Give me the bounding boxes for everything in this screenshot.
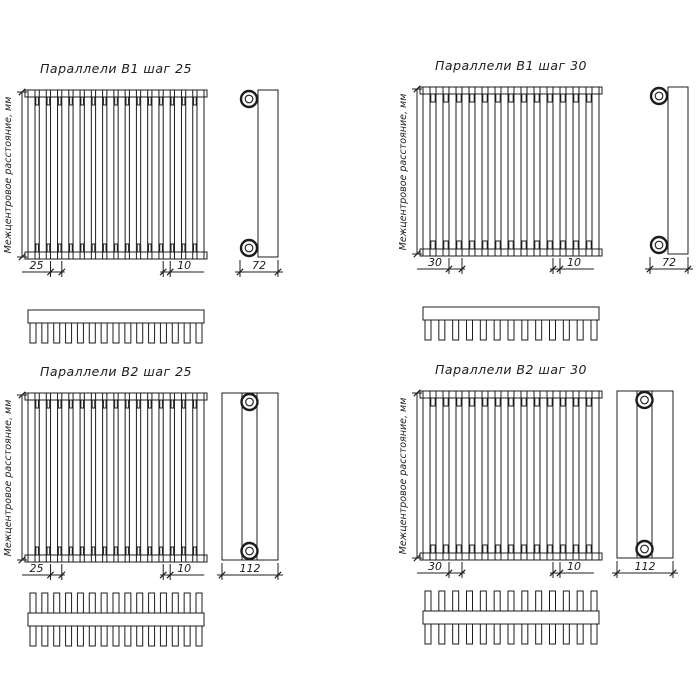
pipe-connection-icon <box>637 541 653 557</box>
front-view <box>420 391 602 560</box>
side-view <box>222 393 278 560</box>
dimension-depth: 72 <box>235 259 283 277</box>
dimension-label: 10 <box>567 560 581 573</box>
side-view <box>651 87 688 254</box>
diagram-drawing: 301072 <box>395 52 700 357</box>
diagram-b1-step30: Параллели В1 шаг 30 Межцентровое расстоя… <box>395 52 700 357</box>
dimension-tube: 10 <box>160 259 204 277</box>
dimension-label: 25 <box>30 562 44 575</box>
dimension-depth: 72 <box>645 256 693 274</box>
pipe-connection-icon <box>242 543 258 559</box>
dimension-label: 30 <box>428 256 442 269</box>
top-view <box>28 593 204 646</box>
diagram-b2-step30: Параллели В2 шаг 30 Межцентровое расстоя… <box>395 356 700 661</box>
side-view <box>617 391 673 558</box>
dimension-label: 72 <box>662 256 676 269</box>
top-view <box>423 307 599 340</box>
diagram-drawing: 3010112 <box>395 356 700 661</box>
dimension-label: 30 <box>428 560 442 573</box>
dimension-tube: 10 <box>160 562 204 580</box>
top-view <box>28 310 204 343</box>
dimension-depth: 112 <box>612 560 678 578</box>
drawing-canvas: Параллели В1 шаг 25 Межцентровое расстоя… <box>0 0 700 700</box>
dimension-depth: 112 <box>217 562 283 580</box>
dimension-label: 10 <box>177 259 191 272</box>
top-view <box>423 591 599 644</box>
centerline-dimension <box>412 86 422 257</box>
dimension-step: 25 <box>22 562 65 580</box>
pipe-connection-icon <box>637 392 653 408</box>
front-view <box>420 87 602 256</box>
dimension-label: 10 <box>177 562 191 575</box>
pipe-connection-icon <box>242 394 258 410</box>
dimension-label: 25 <box>30 259 44 272</box>
dimension-label: 72 <box>252 259 266 272</box>
diagram-b1-step25: Параллели В1 шаг 25 Межцентровое расстоя… <box>0 55 305 360</box>
pipe-connection-icon <box>651 237 667 253</box>
dimension-label: 10 <box>567 256 581 269</box>
pipe-connection-icon <box>241 240 257 256</box>
dimension-step: 30 <box>417 560 465 578</box>
centerline-dimension <box>17 392 27 563</box>
diagram-drawing: 2510112 <box>0 358 305 663</box>
front-view <box>25 90 207 259</box>
dimension-label: 112 <box>635 560 656 573</box>
front-view <box>25 393 207 562</box>
side-view <box>241 90 278 257</box>
dimension-label: 112 <box>240 562 261 575</box>
pipe-connection-icon <box>241 91 257 107</box>
pipe-connection-icon <box>651 88 667 104</box>
centerline-dimension <box>17 89 27 260</box>
dimension-step: 25 <box>22 259 65 277</box>
dimension-tube: 10 <box>550 560 594 578</box>
diagram-b2-step25: Параллели В2 шаг 25 Межцентровое расстоя… <box>0 358 305 663</box>
diagram-drawing: 251072 <box>0 55 305 360</box>
dimension-step: 30 <box>417 256 465 274</box>
dimension-tube: 10 <box>550 256 594 274</box>
centerline-dimension <box>412 390 422 561</box>
